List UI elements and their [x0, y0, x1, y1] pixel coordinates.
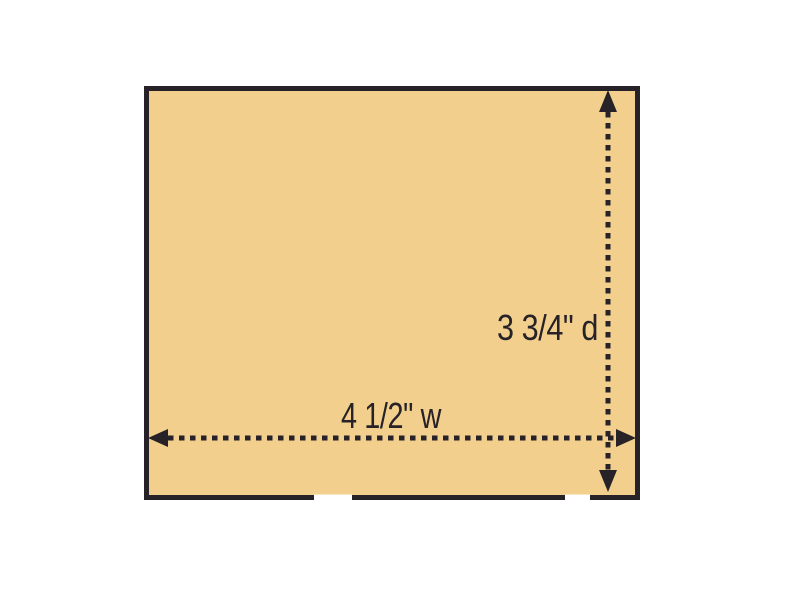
- bottom-edge-gap-left: [314, 495, 352, 502]
- depth-dimension-label: 3 3/4" d: [497, 307, 598, 348]
- width-dimension-label: 4 1/2" w: [341, 395, 442, 436]
- diagram-page: 3 3/4" d 4 1/2" w: [0, 0, 800, 600]
- bottom-edge-gap-right: [565, 495, 590, 502]
- board-dimension-diagram: 3 3/4" d 4 1/2" w: [0, 0, 800, 600]
